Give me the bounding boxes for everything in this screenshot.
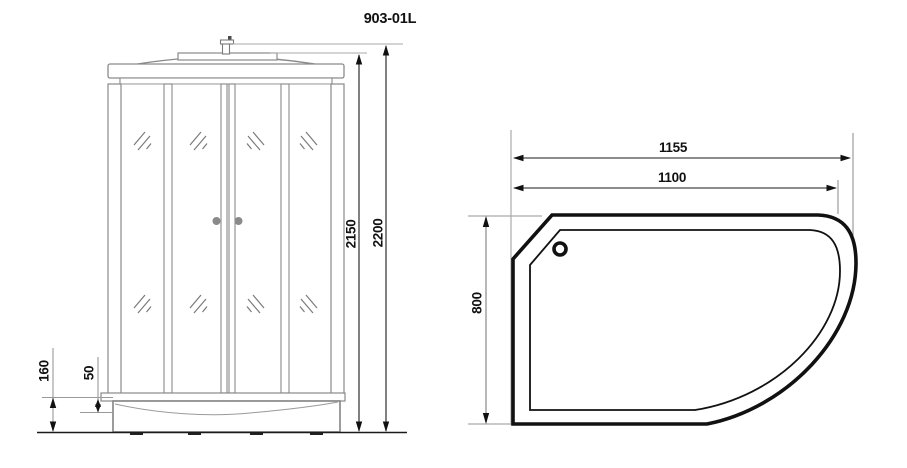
dim-label-inner-width: 1100 [658, 170, 686, 185]
dim-label-outer-width: 1155 [659, 140, 688, 155]
bottom-rail [101, 393, 345, 401]
door-handle-right [235, 217, 243, 225]
arrow-up-icon [50, 398, 56, 409]
arrow-up-icon [356, 54, 362, 65]
dim-label-inner-height: 2150 [344, 220, 359, 249]
arrow-up-icon [483, 216, 489, 227]
arrow-left-icon [513, 185, 524, 191]
dim-inner-width: 1100 [513, 170, 837, 191]
drain-icon [554, 243, 566, 255]
front-view: 2150 2200 160 50 [37, 36, 408, 435]
arrow-down-icon [95, 405, 101, 413]
roof-lip [120, 78, 332, 84]
door-stile-right [229, 84, 235, 393]
door-stile-left [221, 84, 227, 393]
dim-label-step-height: 50 [82, 366, 97, 380]
dim-label-tray-height: 160 [37, 360, 52, 382]
panel-divider-right [281, 84, 289, 393]
shower-pipe-icon [221, 36, 234, 54]
dim-outer-width: 1155 [513, 140, 851, 161]
arrow-left-icon [513, 155, 524, 161]
roof-flange [108, 64, 344, 78]
drawing-canvas: 2150 2200 160 50 [0, 0, 907, 468]
panel-divider-left [164, 84, 172, 393]
door-handle-left [213, 217, 221, 225]
dim-label-depth: 800 [470, 292, 485, 314]
model-title: 903-01L [364, 11, 417, 27]
dim-label-total-height: 2200 [371, 219, 386, 248]
arrow-right-icon [827, 185, 838, 191]
arrow-down-icon [356, 422, 362, 433]
dim-depth: 800 [470, 216, 490, 424]
arrow-down-icon [483, 413, 489, 424]
frame-post-left [108, 84, 121, 394]
arrow-down-icon [383, 422, 389, 433]
tray-front [113, 401, 340, 432]
arrow-up-icon [383, 45, 389, 56]
arrow-right-icon [841, 155, 852, 161]
arrow-down-icon [50, 422, 56, 433]
dim-tray-height: 160 [37, 348, 114, 432]
top-view: 1155 1100 800 [468, 130, 856, 425]
frame-post-right [331, 84, 344, 394]
shower-cabin-drawing: 2150 2200 160 50 [0, 0, 907, 468]
